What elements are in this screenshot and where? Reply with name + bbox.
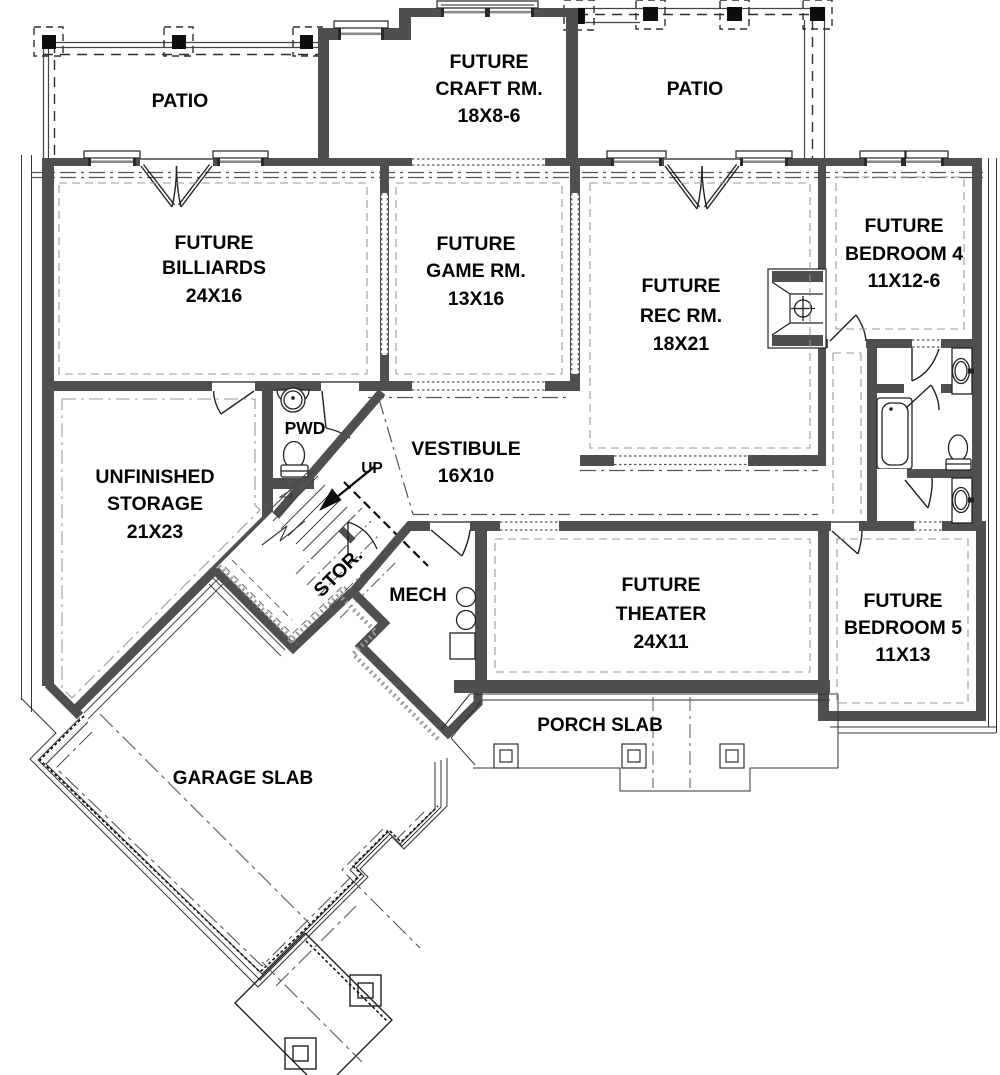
svg-text:24X16: 24X16 xyxy=(186,285,243,307)
svg-text:11X13: 11X13 xyxy=(875,644,930,666)
svg-text:GARAGE SLAB: GARAGE SLAB xyxy=(173,768,313,789)
svg-text:MECH: MECH xyxy=(389,584,446,606)
svg-text:21X23: 21X23 xyxy=(127,521,184,543)
svg-text:FUTURE: FUTURE xyxy=(641,275,720,297)
svg-text:18X21: 18X21 xyxy=(653,333,710,355)
svg-text:FUTURE: FUTURE xyxy=(864,215,943,237)
svg-text:PWD: PWD xyxy=(285,418,326,438)
svg-text:PATIO: PATIO xyxy=(667,78,724,100)
svg-text:VESTIBULE: VESTIBULE xyxy=(411,438,520,460)
svg-text:PATIO: PATIO xyxy=(152,90,209,112)
svg-text:UNFINISHED: UNFINISHED xyxy=(95,466,214,488)
svg-text:FUTURE: FUTURE xyxy=(436,233,515,255)
svg-text:16X10: 16X10 xyxy=(438,465,495,487)
svg-text:BILLIARDS: BILLIARDS xyxy=(162,257,266,279)
svg-text:CRAFT RM.: CRAFT RM. xyxy=(435,78,542,100)
svg-text:UP: UP xyxy=(361,460,383,477)
svg-text:PORCH SLAB: PORCH SLAB xyxy=(537,715,663,736)
svg-text:18X8-6: 18X8-6 xyxy=(458,105,521,127)
svg-text:REC RM.: REC RM. xyxy=(640,305,722,327)
svg-text:FUTURE: FUTURE xyxy=(621,574,700,596)
svg-text:11X12-6: 11X12-6 xyxy=(868,270,941,292)
svg-text:13X16: 13X16 xyxy=(448,288,505,310)
svg-text:GAME RM.: GAME RM. xyxy=(426,260,526,282)
svg-text:FUTURE: FUTURE xyxy=(174,232,253,254)
svg-text:24X11: 24X11 xyxy=(633,631,688,653)
svg-text:STORAGE: STORAGE xyxy=(107,493,203,515)
svg-text:FUTURE: FUTURE xyxy=(449,51,528,73)
svg-text:THEATER: THEATER xyxy=(616,603,707,625)
svg-text:BEDROOM 4: BEDROOM 4 xyxy=(845,243,963,265)
svg-text:FUTURE: FUTURE xyxy=(863,590,942,612)
svg-text:BEDROOM 5: BEDROOM 5 xyxy=(844,617,962,639)
